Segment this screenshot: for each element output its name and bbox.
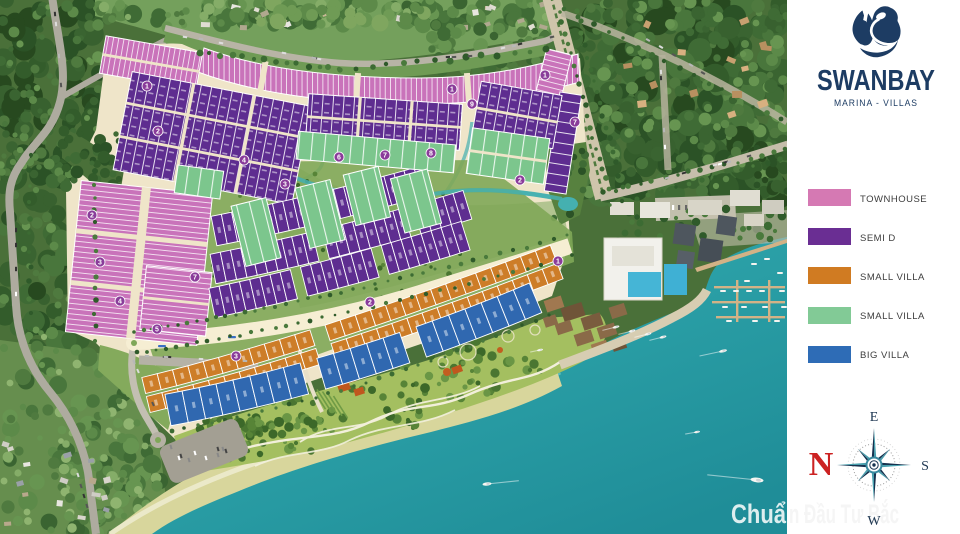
- svg-text:MARINA - VILLAS: MARINA - VILLAS: [834, 98, 918, 108]
- svg-text:BIG VILLA: BIG VILLA: [860, 350, 910, 361]
- svg-text:N: N: [809, 446, 834, 483]
- svg-text:SMALL VILLA: SMALL VILLA: [860, 272, 925, 283]
- svg-text:SEMI D: SEMI D: [860, 233, 896, 244]
- svg-text:W: W: [867, 514, 881, 529]
- svg-text:1: 1: [450, 87, 454, 94]
- svg-text:3: 3: [283, 182, 287, 189]
- svg-text:TOWNHOUSE: TOWNHOUSE: [860, 194, 927, 205]
- svg-text:3: 3: [98, 260, 102, 267]
- svg-text:4: 4: [118, 299, 122, 306]
- svg-text:2: 2: [90, 213, 94, 220]
- svg-text:2: 2: [368, 300, 372, 307]
- svg-text:6: 6: [337, 155, 341, 162]
- svg-text:7: 7: [193, 275, 197, 282]
- svg-text:2: 2: [156, 129, 160, 136]
- svg-text:Chuẩ: Chuẩ: [731, 499, 787, 529]
- svg-text:2: 2: [518, 178, 522, 185]
- svg-text:1: 1: [556, 259, 560, 266]
- svg-text:E: E: [870, 410, 879, 425]
- svg-text:SWANBAY: SWANBAY: [817, 65, 935, 97]
- svg-text:8: 8: [429, 151, 433, 158]
- svg-text:4: 4: [242, 158, 246, 165]
- svg-text:n Đầu Tư Bắc: n Đầu Tư Bắc: [789, 498, 899, 529]
- svg-text:7: 7: [573, 120, 577, 127]
- svg-text:9: 9: [470, 102, 474, 109]
- svg-text:S: S: [921, 459, 929, 474]
- svg-text:7: 7: [383, 153, 387, 160]
- svg-text:5: 5: [155, 327, 159, 334]
- svg-text:3: 3: [234, 354, 238, 361]
- svg-text:1: 1: [543, 73, 547, 80]
- svg-text:1: 1: [145, 84, 149, 91]
- svg-text:SMALL VILLA: SMALL VILLA: [860, 311, 925, 322]
